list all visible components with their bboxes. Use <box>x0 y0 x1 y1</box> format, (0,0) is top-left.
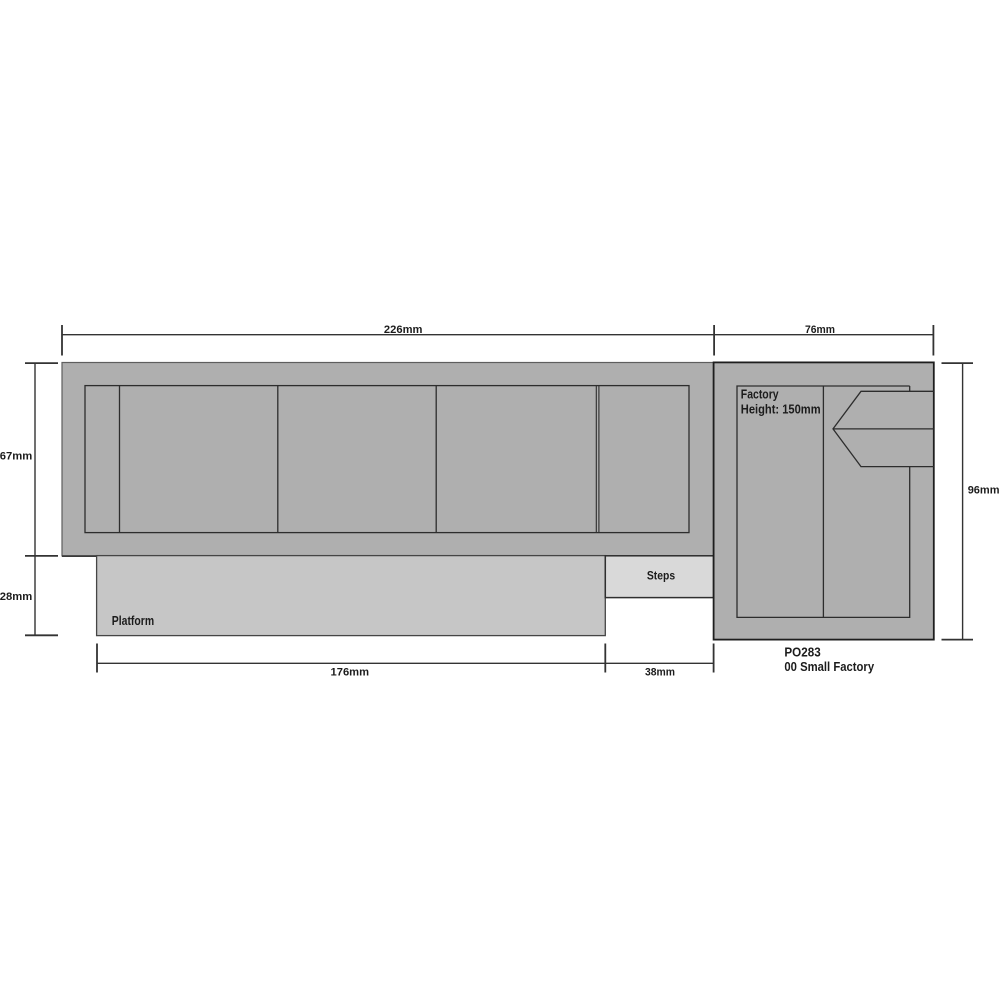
svg-text:38mm: 38mm <box>645 666 675 678</box>
svg-text:00 Small Factory: 00 Small Factory <box>784 659 874 674</box>
svg-text:28mm: 28mm <box>0 591 32 603</box>
svg-text:96mm: 96mm <box>968 484 1000 496</box>
svg-text:PO283: PO283 <box>784 644 820 659</box>
svg-text:Height: 150mm: Height: 150mm <box>741 403 821 417</box>
svg-text:Factory: Factory <box>741 388 779 402</box>
svg-text:Platform: Platform <box>112 613 154 628</box>
svg-text:Steps: Steps <box>647 569 675 583</box>
svg-text:67mm: 67mm <box>0 450 32 462</box>
svg-text:76mm: 76mm <box>805 324 835 336</box>
svg-text:226mm: 226mm <box>384 324 423 336</box>
svg-text:176mm: 176mm <box>331 666 370 678</box>
